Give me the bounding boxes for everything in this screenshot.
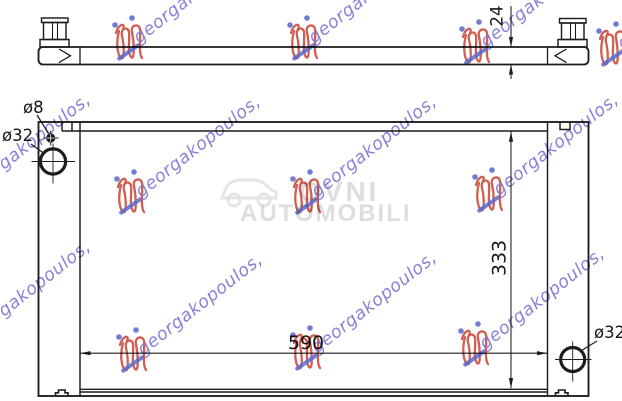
dim-width-value: 590 [288, 332, 324, 354]
radiator-drawing-stage: OVNI AUTOMOBILI [0, 0, 622, 401]
mount-pin-left [40, 18, 69, 47]
technical-drawing: 24 ø8 ø32 [0, 0, 622, 401]
dim-height: 333 [489, 131, 514, 388]
label-dia8-text: ø8 [23, 98, 44, 117]
pin-hole-small [44, 131, 59, 146]
label-dia32-bottom-text: ø32 [594, 323, 622, 342]
dim-depth-value: 24 [488, 6, 507, 27]
label-dia32-top-text: ø32 [2, 126, 33, 145]
dim-height-value: 333 [489, 240, 511, 276]
dim-width: 590 [80, 332, 548, 355]
mount-pin-right [558, 19, 587, 48]
dim-depth: 24 [488, 6, 514, 80]
label-dia32-top: ø32 [2, 126, 44, 153]
